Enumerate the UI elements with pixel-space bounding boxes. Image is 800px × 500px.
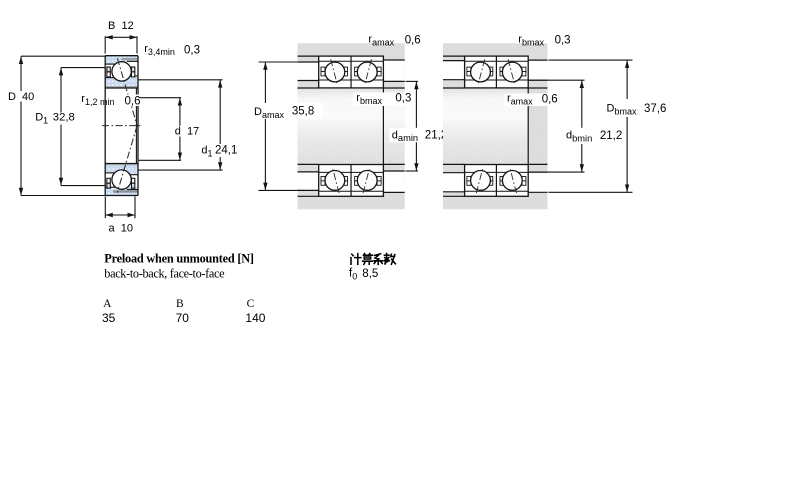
svg-text:B: B bbox=[176, 298, 184, 310]
svg-text:35,8: 35,8 bbox=[292, 106, 314, 118]
svg-text:Preload when unmounted [N]: Preload when unmounted [N] bbox=[104, 252, 254, 266]
svg-text:0,3: 0,3 bbox=[184, 45, 200, 57]
svg-text:21,2: 21,2 bbox=[600, 130, 622, 142]
svg-text:0,3: 0,3 bbox=[395, 92, 411, 104]
svg-text:35: 35 bbox=[102, 311, 116, 325]
svg-text:0,6: 0,6 bbox=[405, 35, 421, 47]
svg-text:140: 140 bbox=[245, 311, 265, 325]
svg-text:a 10: a 10 bbox=[109, 223, 133, 235]
svg-text:back-to-back, face-to-face: back-to-back, face-to-face bbox=[104, 266, 225, 280]
svg-text:8,5: 8,5 bbox=[362, 268, 378, 280]
svg-text:A: A bbox=[103, 298, 112, 310]
svg-text:0,6: 0,6 bbox=[542, 94, 558, 106]
svg-text:0,6: 0,6 bbox=[125, 95, 141, 107]
svg-text:C: C bbox=[247, 298, 255, 310]
svg-text:70: 70 bbox=[176, 311, 190, 325]
svg-text:D 40: D 40 bbox=[8, 91, 34, 103]
svg-text:d 17: d 17 bbox=[175, 126, 199, 138]
svg-text:B 12: B 12 bbox=[108, 20, 134, 32]
svg-text:32,8: 32,8 bbox=[53, 112, 75, 124]
svg-text:0,3: 0,3 bbox=[555, 35, 571, 47]
svg-text:24,1: 24,1 bbox=[215, 144, 237, 156]
svg-text:37,6: 37,6 bbox=[644, 103, 666, 115]
